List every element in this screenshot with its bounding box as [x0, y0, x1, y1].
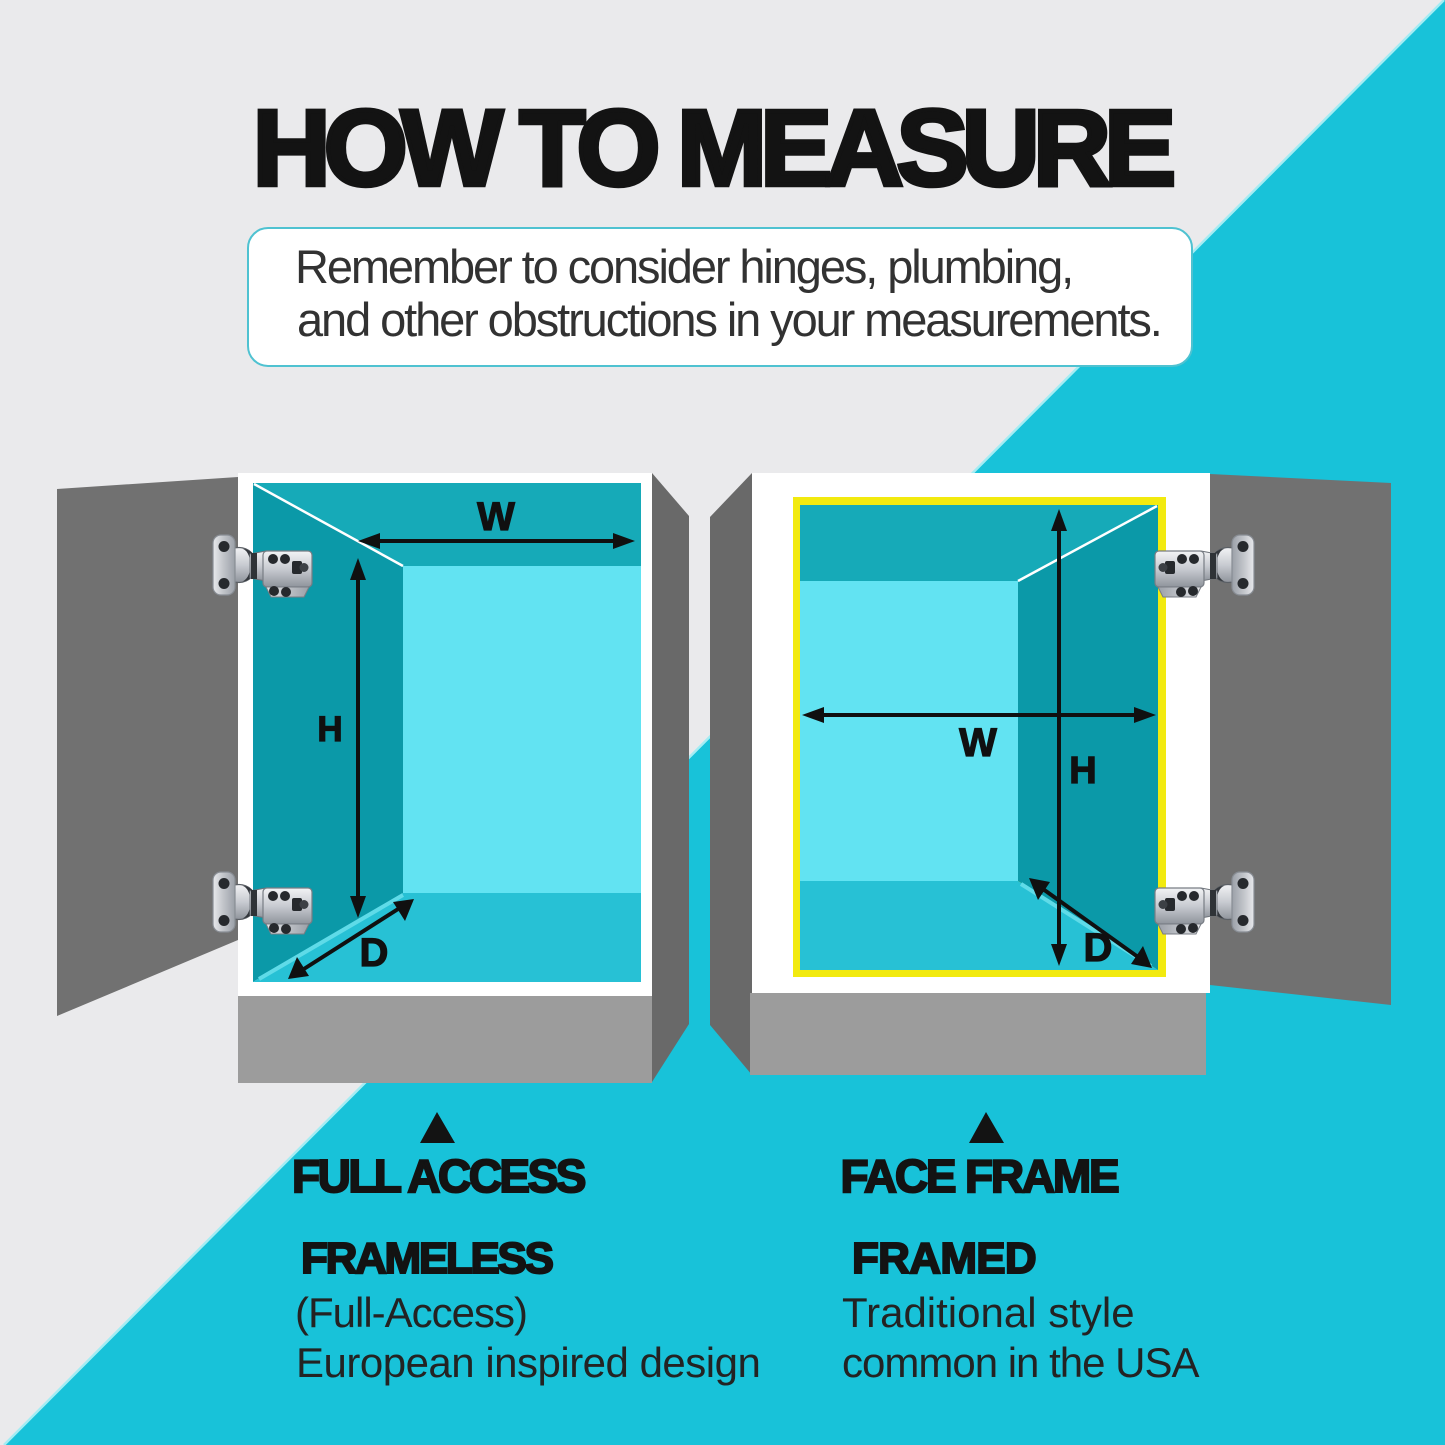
svg-text:FACE FRAME: FACE FRAME — [840, 1150, 1118, 1202]
svg-text:D: D — [360, 931, 389, 975]
svg-text:FRAMED: FRAMED — [852, 1234, 1036, 1283]
svg-text:common in the USA: common in the USA — [842, 1339, 1199, 1386]
svg-text:H: H — [1069, 750, 1096, 792]
svg-text:(Full-Access): (Full-Access) — [295, 1289, 527, 1336]
svg-text:H: H — [317, 710, 342, 749]
svg-text:W: W — [959, 721, 997, 765]
svg-text:Traditional style: Traditional style — [842, 1289, 1135, 1336]
svg-text:FULL ACCESS: FULL ACCESS — [292, 1150, 585, 1202]
svg-text:D: D — [1084, 926, 1113, 970]
svg-text:W: W — [477, 495, 515, 539]
svg-text:HOW TO MEASURE: HOW TO MEASURE — [253, 87, 1173, 208]
svg-text:Remember to consider hinges, p: Remember to consider hinges, plumbing, — [295, 240, 1072, 293]
svg-text:European inspired design: European inspired design — [296, 1339, 760, 1386]
svg-text:FRAMELESS: FRAMELESS — [301, 1234, 553, 1283]
svg-text:and other obstructions in your: and other obstructions in your measureme… — [297, 293, 1161, 346]
